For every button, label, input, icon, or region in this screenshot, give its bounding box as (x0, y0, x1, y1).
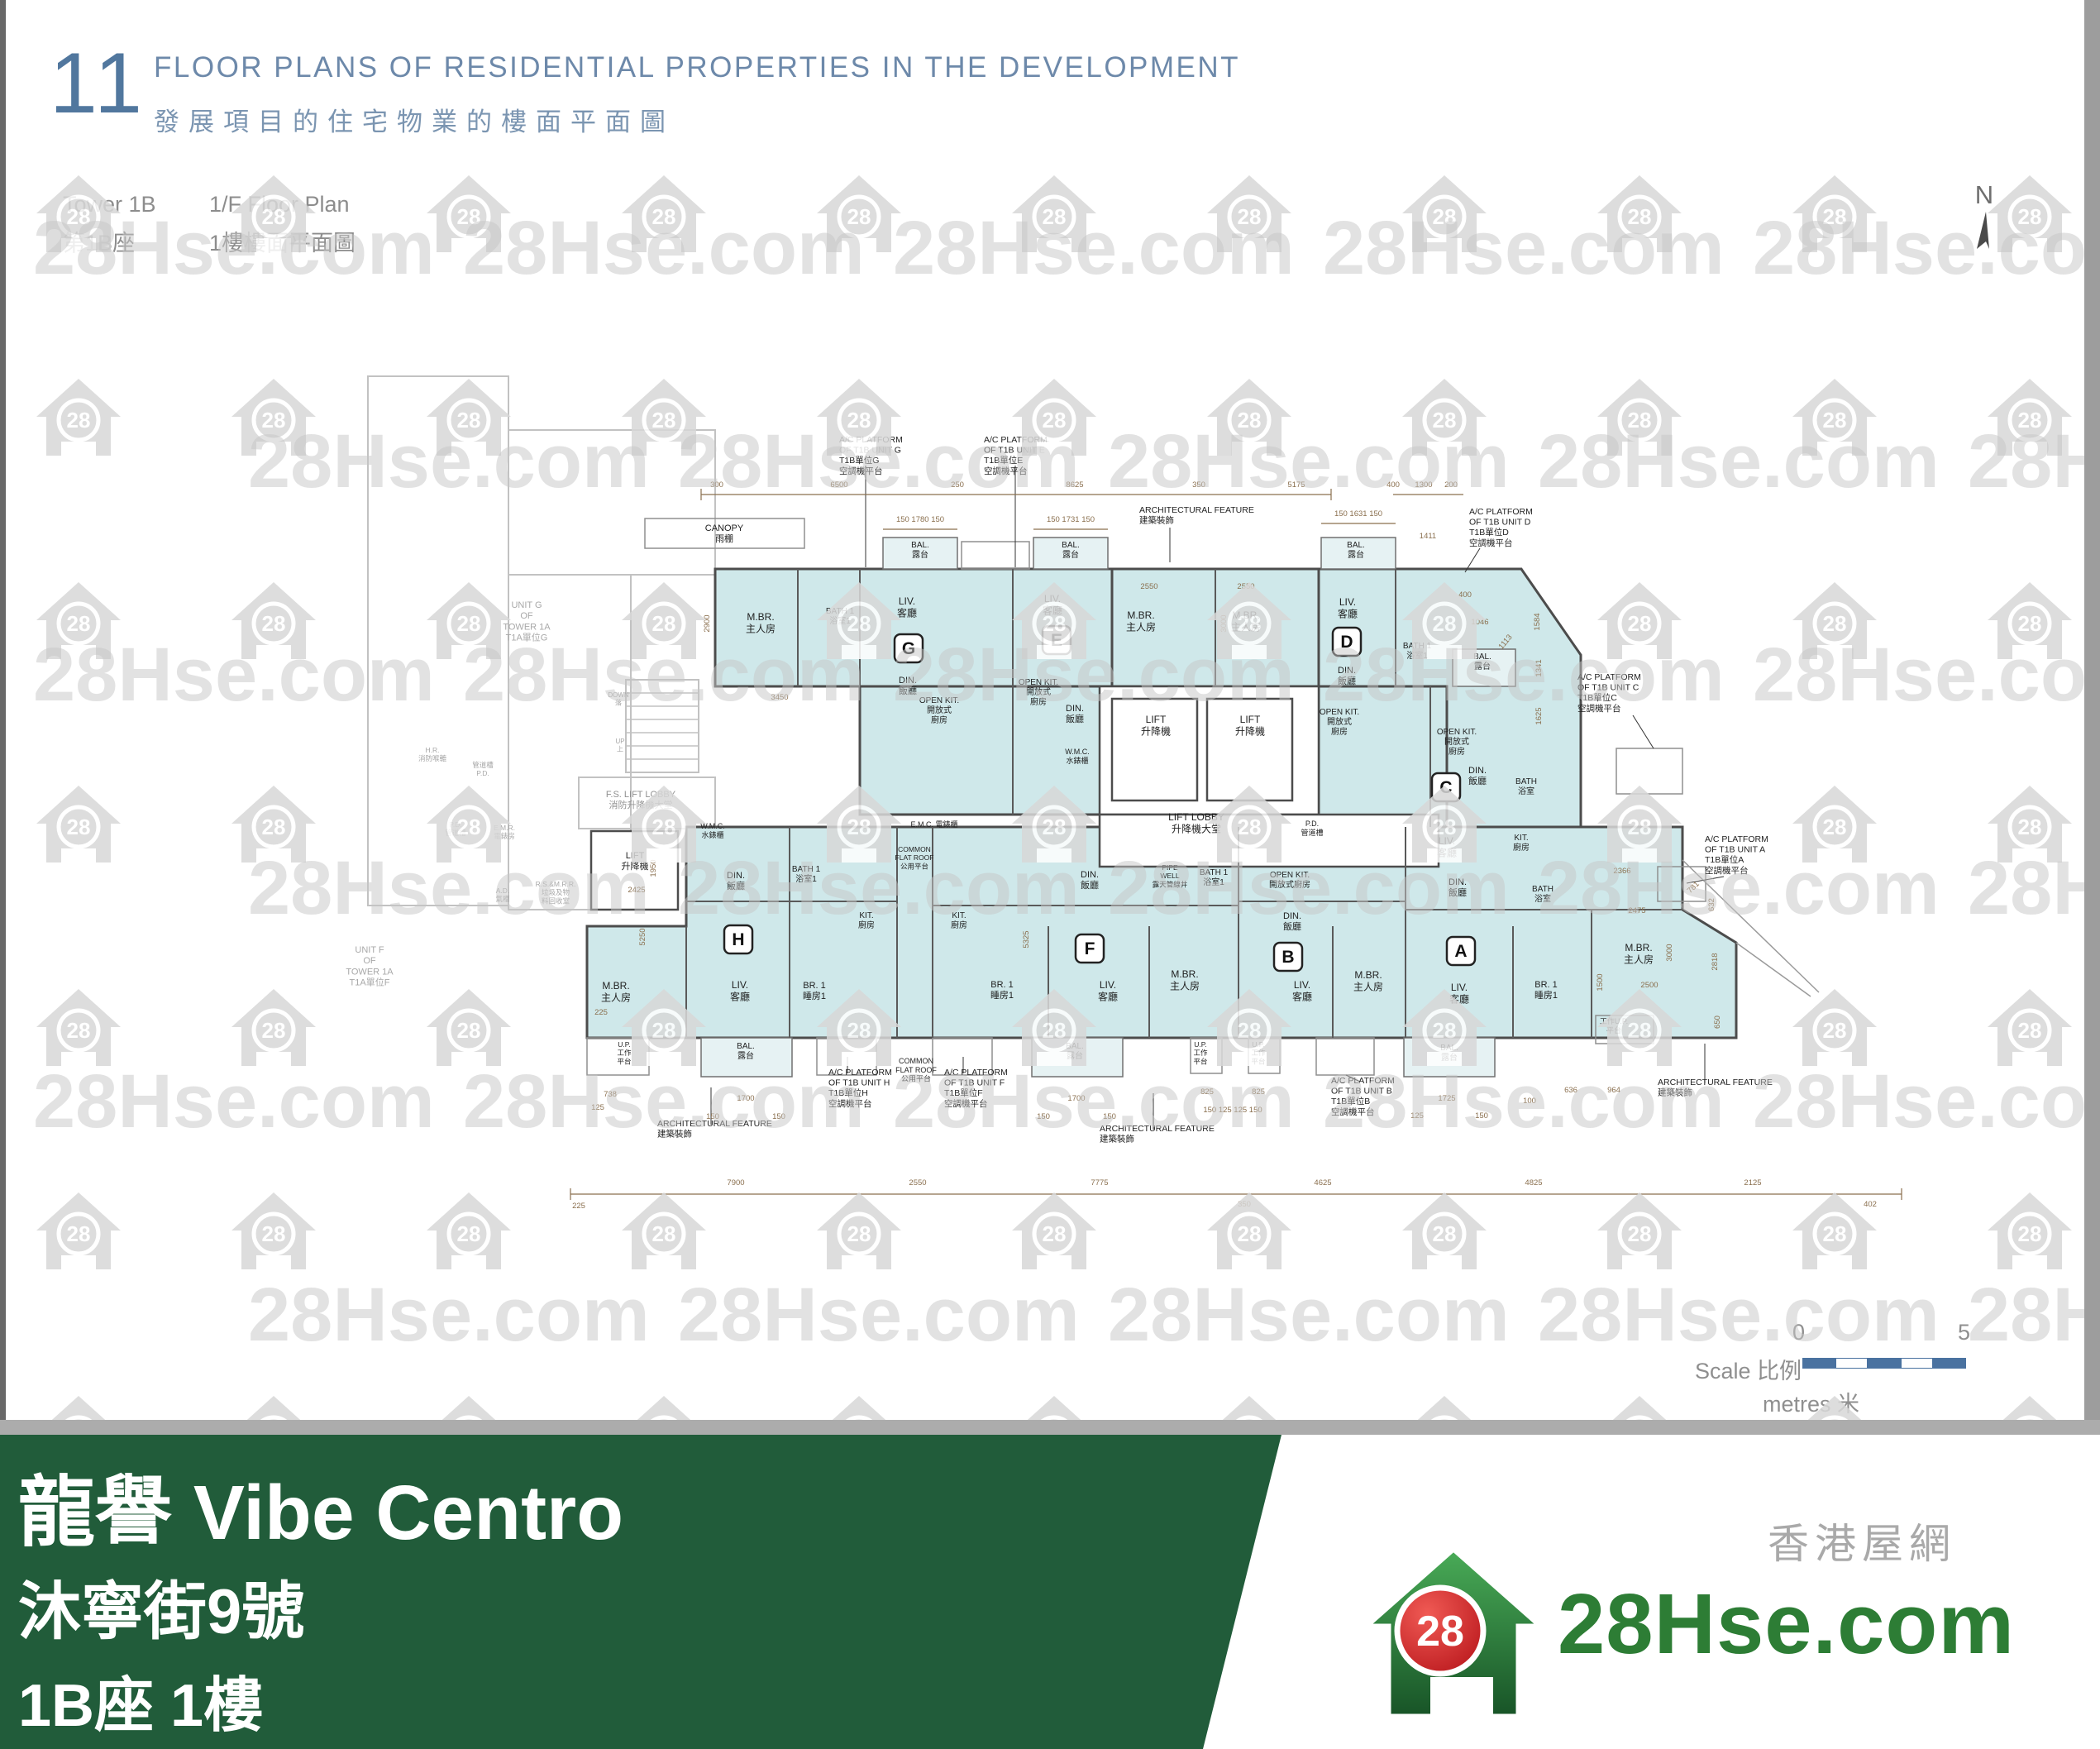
dimension-text: 350 (1238, 1200, 1251, 1209)
dimension-text: 2475 (1628, 906, 1645, 915)
page-right-border (2084, 0, 2100, 1420)
plan-label: UP上 (615, 738, 624, 753)
plan-label: BR. 1睡房1 (990, 980, 1014, 1001)
plan-label: A/C PLATFORMOF T1B UNIT BT1B單位B空調機平台 (1331, 1076, 1395, 1117)
dimension-text: 6500 (830, 480, 847, 490)
footer: 龍譽 Vibe Centro 沐寧街9號 1B座 1樓 28 28Hse.com… (0, 1435, 2100, 1749)
dimension-text: 4825 (1525, 1178, 1542, 1188)
dimension-text: 2550 (1237, 582, 1254, 591)
plan-label: BAL.露台 (1066, 1042, 1084, 1061)
scale-label: Scale 比例 (1695, 1353, 1802, 1385)
dimension-text: 781 (1686, 880, 1701, 896)
dimension-text: 150 (772, 1112, 785, 1121)
dimension-text: 738 (604, 1090, 617, 1099)
plan-label: A/C PLATFORMOF T1B UNIT GT1B單位G空調機平台 (839, 435, 903, 476)
plan-label: W.M.C.水錶櫃 (700, 822, 725, 839)
project-name: 龍譽 Vibe Centro (18, 1450, 623, 1561)
plan-label: BATH 1浴室1 (1403, 642, 1432, 661)
unit-letter-E: E (1051, 631, 1062, 650)
platform-outline (1616, 748, 1682, 794)
scale-segments (1802, 1358, 1966, 1369)
plan-label: M.BR.主人房 (601, 980, 631, 1003)
dimension-text: 100 (1523, 1097, 1536, 1106)
plan-label: A/C PLATFORMOF T1B UNIT CT1B單位C空調機平台 (1577, 672, 1641, 714)
dimension-text: 1411 (1420, 532, 1436, 541)
plan-label: F.S. LIFT LOBBY消防升降機大堂 (606, 790, 676, 810)
plan-label: BAL.露台 (911, 541, 929, 560)
dimension-text: 7775 (1091, 1178, 1108, 1188)
page-left-border (0, 0, 6, 1420)
plan-label: LIV.客廳 (1098, 979, 1118, 1002)
dimension-text: 2550 (1140, 582, 1157, 591)
plan-label: ARCHITECTURAL FEATURE建築裝飾 (1139, 505, 1254, 526)
plan-label: LIV.客廳 (1338, 596, 1358, 619)
dimension-text: 402 (1864, 1200, 1877, 1209)
plan-label: DIN.飯廳 (1066, 704, 1084, 724)
plan-line (1633, 715, 1654, 748)
plan-label: A/C PLATFORMOF T1B UNIT DT1B單位D空調機平台 (1469, 507, 1533, 548)
plan-label: M.BR.主人房 (746, 611, 776, 634)
plan-label: KIT.廚房 (951, 911, 967, 930)
unit-letter-B: B (1281, 948, 1294, 967)
plan-label: U.P.工作平台 (1251, 1040, 1266, 1065)
plan-label: ARCHITECTURAL FEATURE建築裝飾 (1658, 1078, 1773, 1098)
dimension-text: 1700 (737, 1094, 754, 1103)
plan-label: COMMONFLAT ROOF公用平台 (895, 1057, 937, 1083)
dimension-text: 150 (1475, 1111, 1488, 1121)
project-address: 沐寧街9號 (18, 1560, 304, 1651)
unit-letter-H: H (732, 930, 744, 949)
dimension-text: 150 1780 150 (896, 515, 944, 524)
plan-label: LIV.客廳 (1437, 835, 1457, 858)
unit-letter-A: A (1454, 942, 1467, 961)
dimension-text: 2550 (909, 1178, 926, 1188)
plan-label: BATH浴室 (1532, 885, 1554, 904)
plan-label: M.BR.主人房 (1353, 969, 1383, 992)
plan-label: A/C PLATFORMOF T1B UNIT AT1B單位A空調機平台 (1705, 834, 1768, 876)
logo-brand[interactable]: 28Hse.com (1558, 1575, 2015, 1673)
dimension-text: 150 1631 150 (1334, 509, 1382, 518)
plan-label: LIV.客廳 (1043, 593, 1062, 616)
plan-label: BR. 1睡房1 (1534, 980, 1558, 1001)
dimension-text: 2366 (1613, 867, 1630, 876)
dimension-text: 125 (1410, 1111, 1424, 1121)
plan-label: DIN.飯廳 (1449, 877, 1467, 898)
dimension-text: 150 (1037, 1112, 1050, 1121)
plan-label: DIN.飯廳 (727, 871, 745, 891)
footer-divider-band (0, 1420, 2100, 1435)
plan-label: A/C PLATFORMOF T1B UNIT FT1B單位F空調機平台 (944, 1068, 1008, 1109)
dimension-text: 3450 (771, 693, 788, 702)
unit-letter-G: G (902, 639, 915, 658)
plan-label: W.M.C.水錶櫃 (1065, 748, 1090, 765)
plan-label: A/C PLATFORMOF T1B UNIT ET1B單位E空調機平台 (984, 435, 1048, 476)
plan-label: ARCHITECTURAL FEATURE建築裝飾 (657, 1119, 772, 1140)
plan-label: UNIT GOFTOWER 1AT1A單位G (503, 600, 551, 643)
dimension-text: 7900 (727, 1178, 744, 1188)
dimension-text: 300 (710, 480, 723, 490)
dimension-text: 5325 (1022, 930, 1031, 948)
dimension-text: 2425 (628, 886, 645, 895)
plan-label: P.D.管道槽 (445, 820, 466, 837)
unit-letter-D: D (1340, 633, 1353, 652)
logo-house-icon[interactable]: 28 (1354, 1546, 1553, 1720)
dimension-text: 200 (1444, 480, 1458, 490)
scale-bar: 0 5 Scale 比例 metres 米 (1687, 1320, 2001, 1415)
plan-label: BAL.露台 (1440, 1044, 1458, 1063)
dimension-text: 2900 (703, 614, 712, 632)
dimension-text: 1950 (649, 859, 658, 877)
dimension-text: 964 (1607, 1086, 1620, 1095)
dimension-text: 632 (1707, 898, 1716, 911)
plan-label: DIN.飯廳 (1081, 870, 1099, 891)
dimension-text: 400 (1458, 590, 1472, 600)
dimension-text: 2125 (1744, 1178, 1761, 1188)
annex-outline (368, 376, 508, 906)
dimension-text: 3000 (1665, 944, 1674, 961)
dimension-text: 125 (591, 1103, 604, 1112)
unit-letter-C: C (1439, 778, 1452, 797)
plan-label: DIN.飯廳 (1338, 666, 1356, 686)
plan-label: U.P.工作平台 (617, 1040, 632, 1065)
plan-label: M.BR.主人房 (1170, 968, 1200, 992)
dimension-text: 1046 (1471, 618, 1488, 627)
dimension-text: 150 125 125 150 (1203, 1106, 1262, 1115)
plan-label: LIV.客廳 (1292, 979, 1312, 1002)
plan-label: A.D.氣槽 (495, 886, 510, 903)
project-banner: 龍譽 Vibe Centro 沐寧街9號 1B座 1樓 (0, 1435, 1290, 1749)
logo-tagline: 香港屋網 (1768, 1511, 1956, 1570)
plan-label: KIT.廚房 (1513, 834, 1530, 853)
plan-label: 管道槽P.D. (472, 761, 494, 777)
plan-label: E.M.C. 電錶櫃 (910, 820, 957, 829)
dimension-text: 2818 (1711, 953, 1720, 970)
scale-end: 5 (1958, 1320, 1970, 1345)
compass-label: N (1968, 180, 2001, 210)
plan-label: BAL.露台 (1347, 541, 1365, 560)
plan-label: DIN.飯廳 (899, 676, 917, 696)
north-arrow-icon (1973, 210, 1996, 253)
plan-label: BATH 1浴室1 (1200, 868, 1229, 887)
dimension-text: 400 (1386, 480, 1400, 490)
unit-letter-F: F (1085, 939, 1095, 958)
plan-label: LIV.客廳 (897, 595, 917, 619)
plan-label: COMMONFLAT ROOF公用平台 (895, 845, 934, 870)
dimension-text: 1700 (1067, 1094, 1085, 1103)
plan-label: BR. 1睡房1 (803, 981, 826, 1001)
dimension-text: 150 (1103, 1112, 1116, 1121)
dimension-text: 650 (1713, 1015, 1722, 1029)
dimension-text: 350 (1192, 480, 1205, 490)
plan-label: KIT.廚房 (858, 911, 875, 930)
scale-units: metres 米 (1763, 1386, 1859, 1418)
annex-outline (626, 680, 699, 772)
plan-label: M.BR.主人房 (1126, 609, 1156, 633)
plan-label: CANOPY雨棚 (705, 523, 744, 544)
plan-label: BATH 1浴室1 (826, 607, 855, 626)
plan-label: OPEN KIT.開放式廚房 (1269, 871, 1310, 890)
plan-label: H.R.消防喉轆 (418, 746, 447, 762)
dimension-text: 3000 (1219, 614, 1229, 632)
plan-label: BAL.露台 (737, 1042, 755, 1061)
plan-label: BAL.露台 (1062, 541, 1080, 560)
plan-label: BATH浴室 (1515, 777, 1537, 796)
dimension-text: 636 (1564, 1086, 1577, 1095)
logo-badge: 28 (1416, 1608, 1464, 1656)
service-block (1100, 815, 1439, 867)
dimension-text: 1341 (1534, 659, 1544, 676)
plan-label: ARCHITECTURAL FEATURE建築裝飾 (1100, 1124, 1215, 1144)
dimension-text: 825 (1252, 1087, 1265, 1097)
plan-label: UNIT FOFTOWER 1AT1A單位F (346, 945, 394, 988)
plan-label: DIN.飯廳 (1468, 766, 1487, 786)
dimension-text: 250 (951, 480, 964, 490)
platform-outline (1316, 1038, 1374, 1075)
tower-floor-label: 1B座 1樓 (18, 1656, 263, 1743)
dimension-text: 1625 (1534, 707, 1544, 724)
plan-label: M.BR.主人房 (1231, 609, 1261, 633)
plan-label: A/C PLATFORMOF T1B UNIT HT1B單位H空調機平台 (828, 1068, 892, 1109)
plan-label: BAL.露台 (1473, 652, 1491, 671)
dimension-text: 225 (594, 1008, 608, 1017)
dimension-text: 1725 (1438, 1094, 1455, 1103)
dimension-text: 225 (572, 1202, 585, 1211)
plan-label: DIN.飯廳 (1283, 911, 1301, 932)
scale-start: 0 (1792, 1320, 1805, 1345)
plan-label: R.S.&M.R.R.垃圾及物料回收室 (536, 880, 576, 905)
plan-line (1736, 943, 1811, 996)
dimension-text: 150 1731 150 (1047, 515, 1095, 524)
dimension-text: 5250 (638, 928, 647, 945)
plan-label: U.P.工作平台 (1193, 1040, 1208, 1065)
plan-label: BATH 1浴室1 (792, 865, 821, 884)
plan-label: LIV.客廳 (730, 979, 750, 1002)
dimension-text: 825 (1200, 1087, 1214, 1097)
dimension-text: 1500 (1596, 973, 1605, 991)
dimension-text: 2500 (1640, 981, 1658, 990)
dimension-text: 5175 (1287, 480, 1305, 490)
plan-label: LIFT LOBBY升降機大堂 (1168, 811, 1224, 834)
dimension-text: 1300 (1415, 480, 1432, 490)
dimension-text: 1584 (1533, 613, 1542, 630)
dimension-text: 4625 (1314, 1178, 1331, 1188)
compass: N (1968, 180, 2001, 257)
plan-label: M.BR.主人房 (1624, 942, 1654, 965)
platform-outline (962, 542, 1029, 569)
annex-outline (508, 430, 715, 575)
dimension-text: 8625 (1066, 480, 1083, 490)
plan-label: LIV.客廳 (1449, 982, 1469, 1005)
plan-label: E.M.R.電錶房 (494, 824, 515, 840)
